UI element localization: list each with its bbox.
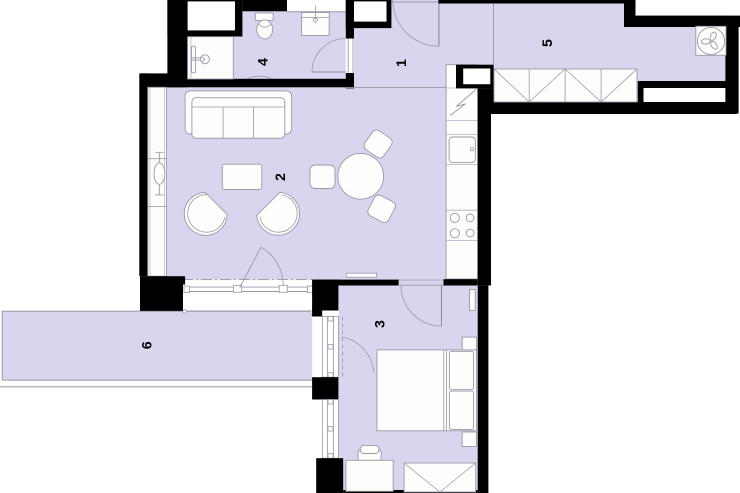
svg-text:2: 2 [273, 173, 289, 181]
svg-text:1: 1 [394, 59, 410, 67]
svg-text:5: 5 [540, 39, 556, 47]
svg-text:6: 6 [139, 341, 155, 349]
svg-text:4: 4 [256, 58, 272, 66]
svg-text:3: 3 [373, 320, 389, 328]
